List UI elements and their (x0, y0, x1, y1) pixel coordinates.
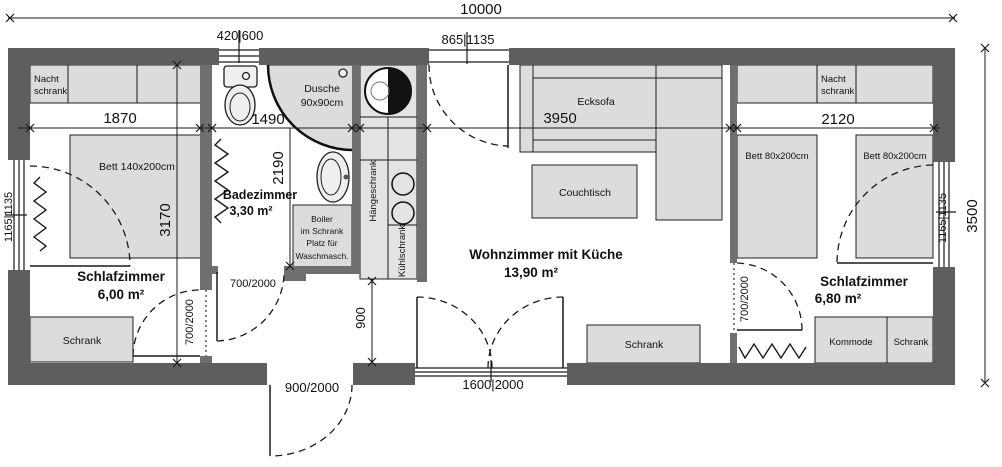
entry-door-threshold (429, 50, 509, 62)
dim-window-top: 420|600 (217, 28, 264, 43)
label-nightstandR-2: schrank (821, 86, 855, 97)
dim-door-bedroomR: 700/2000 (739, 276, 751, 322)
dim-bath-depth: 2190 (270, 151, 287, 184)
toilet-tank (224, 66, 257, 87)
dim-window-bottom: 1600|2000 (462, 377, 523, 392)
wall-right-1 (933, 48, 955, 162)
label-shower-2: 90x90cm (301, 97, 344, 109)
room-bedroomR-area: 6,80 m² (815, 291, 862, 306)
dim-bedroomL-width: 1870 (103, 110, 136, 127)
french-door-swing-right (488, 297, 563, 368)
room-bedroomL-name: Schlafzimmer (77, 269, 166, 284)
dim-bedroomR-width: 2120 (821, 111, 854, 128)
sofa-chaise (656, 65, 722, 220)
label-wardrobe-left: Schrank (63, 335, 102, 347)
label-bed-left: Bett 140x200cm (99, 161, 175, 173)
label-shower-1: Dusche (304, 83, 340, 95)
label-bed-right-2: Bett 80x200cm (863, 151, 926, 162)
room-bedroomL-area: 6,00 m² (98, 287, 145, 302)
label-coffee-table: Couchtisch (559, 187, 611, 199)
label-sofa: Ecksofa (577, 96, 615, 108)
dim-overall-height: 3500 (964, 199, 981, 232)
radiator-bedroomL-icon (34, 177, 46, 251)
wall-right-2 (933, 267, 955, 385)
dim-bedroomL-depth: 3170 (157, 203, 174, 236)
label-boiler-4: Waschmasch. (295, 251, 348, 261)
wall-bedroomL-2 (200, 356, 212, 363)
label-boiler-1: Boiler (311, 214, 333, 224)
label-nightstandR-1: Nacht (821, 74, 846, 85)
radiator-bath-icon (215, 139, 228, 223)
dim-door-bottom: 900/2000 (285, 380, 339, 395)
dim-living-width: 3950 (543, 110, 576, 127)
wall-top-3 (509, 48, 955, 65)
kitchen-sink-icon (365, 68, 411, 114)
wall-bedroomR-2 (730, 333, 737, 363)
radiator-bedroomR-icon (739, 344, 806, 358)
wall-bottom-1 (8, 363, 267, 385)
entry-door-swing (429, 65, 508, 146)
dim-window-left: 1165|1135 (3, 192, 15, 242)
label-nightstandL-1: Nacht (34, 74, 59, 85)
label-boiler-2: im Schrank (301, 226, 344, 236)
label-dresser: Kommode (829, 337, 872, 348)
washbasin-icon (317, 152, 349, 202)
dim-door-bath: 700/2000 (230, 278, 276, 290)
room-living-area: 13,90 m² (504, 265, 559, 280)
label-bed-right-1: Bett 80x200cm (745, 151, 808, 162)
french-door-leaves (417, 297, 563, 368)
dim-kitchen-passage: 900 (353, 307, 368, 329)
label-wardrobe-living: Schrank (625, 339, 664, 351)
wall-bath-kitchen (352, 65, 360, 273)
washbasin-faucet (344, 175, 349, 180)
wall-bottom-2 (353, 363, 415, 385)
room-bath-name: Badezimmer (223, 188, 297, 202)
french-door-swing-left (417, 297, 492, 368)
label-nightstandL-2: schrank (34, 86, 68, 97)
dim-bath-width: 1490 (251, 111, 284, 128)
bed-left (70, 135, 203, 258)
dim-overall-width: 10000 (460, 1, 502, 18)
sofa-armrest (520, 65, 533, 152)
dim-window-right: 1165|1135 (937, 193, 949, 243)
wall-left-1 (8, 48, 30, 160)
shower-head-icon (339, 69, 347, 77)
floor-plan: 10000 420|600 865|1135 1870 1490 3950 21… (0, 0, 1002, 467)
label-boiler-3: Platz für (306, 238, 337, 248)
wall-bottom-3 (567, 363, 955, 385)
label-fridge: Kühlschrank (397, 225, 408, 278)
wall-bedroomL-1 (200, 65, 212, 290)
room-living-name: Wohnzimmer mit Küche (469, 247, 623, 262)
dim-entry-door: 865|1135 (441, 32, 494, 47)
room-bedroomR-name: Schlafzimmer (820, 274, 909, 289)
wall-top-2 (259, 48, 429, 65)
floor-plan-page: 10000 420|600 865|1135 1870 1490 3950 21… (0, 0, 1002, 467)
sofa-front-edge (533, 140, 656, 152)
room-bath-area: 3,30 m² (229, 204, 272, 218)
toilet-flush-button (243, 73, 250, 80)
wall-left-2 (8, 270, 30, 385)
dim-door-bedroomL: 700/2000 (184, 299, 196, 345)
wall-bedroomR-1 (730, 65, 737, 263)
entranceS-door-swing (270, 385, 352, 456)
wall-kitchen-hall (417, 65, 427, 282)
wall-top-1 (8, 48, 219, 65)
label-wardrobe-right: Schrank (894, 337, 929, 348)
label-wall-cabinet: Hängeschrank (368, 160, 379, 222)
